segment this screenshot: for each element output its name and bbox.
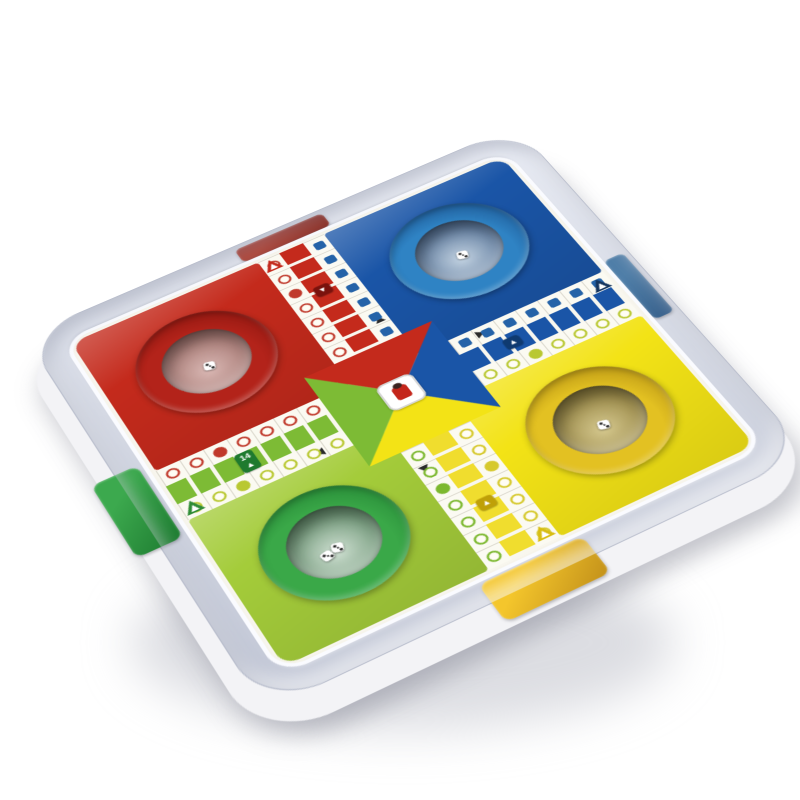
track-space: [297, 301, 315, 314]
die-pip: [458, 253, 461, 255]
badge-arrow: ▲: [244, 460, 257, 470]
track-space: [481, 459, 501, 474]
track-space: [275, 273, 293, 286]
track-space: [457, 337, 473, 348]
track-space: [546, 297, 562, 308]
warning-triangle-icon: [180, 497, 205, 516]
track-lane-bottom: ▲: [401, 421, 561, 570]
popper-ring-yellow: [499, 346, 704, 496]
track-space: [308, 316, 326, 329]
die: [456, 250, 469, 260]
badge-label: ▼: [317, 285, 329, 294]
track-space: [548, 337, 567, 351]
track-space: [533, 525, 553, 540]
popper-ring-green: [233, 464, 437, 623]
track-space: [523, 307, 539, 318]
die-pip: [333, 545, 336, 548]
track-space: [592, 317, 611, 330]
track-space: [526, 347, 545, 361]
badge-label: ▲: [507, 337, 520, 346]
track-space: [520, 508, 540, 523]
dice-popper-red: [113, 292, 302, 434]
track-spaces-green-side: [402, 443, 510, 569]
track-space: [480, 367, 499, 381]
track-space: [280, 457, 299, 471]
brand-mascot-mark: [390, 383, 413, 401]
die: [319, 549, 336, 562]
home-ladder-green: [166, 413, 343, 504]
track-space: [319, 331, 337, 344]
badge-label: 14: [238, 452, 252, 462]
track-space: [280, 414, 299, 428]
track-space: [185, 500, 204, 515]
track-space: [257, 468, 276, 483]
track-space: [458, 514, 478, 529]
track-space: [469, 443, 488, 458]
track-space: [333, 268, 348, 279]
dice-popper-yellow: [499, 346, 704, 496]
track-space: [456, 427, 475, 441]
track-space: [568, 287, 584, 298]
track-space: [615, 307, 634, 320]
dice-popper-blue: [365, 185, 554, 318]
warning-triangle-inner: [188, 503, 200, 512]
warning-triangle-inner: [537, 529, 550, 539]
track-space: [344, 282, 359, 293]
track-spaces-yellow-side: [450, 421, 560, 546]
die: [203, 361, 216, 371]
track-space: [445, 498, 465, 513]
die: [596, 419, 611, 430]
track-space: [312, 240, 327, 251]
track-space: [210, 445, 229, 459]
popper-dome-green: [270, 492, 399, 593]
track-space: [304, 447, 323, 461]
die-pip: [322, 555, 326, 558]
track-space: [303, 403, 322, 417]
warning-triangle-icon: [529, 522, 556, 542]
track-space: [420, 465, 439, 480]
lane-badge-14: 14 ▲: [233, 449, 263, 474]
track-spaces-green-side: [178, 431, 353, 519]
track-space: [378, 326, 394, 337]
track-space: [322, 254, 337, 265]
die-pip: [330, 554, 334, 557]
die-pip: [606, 425, 609, 428]
track-space: [494, 475, 514, 490]
track-space: [570, 327, 589, 341]
die-pip: [205, 363, 208, 365]
track-space: [408, 449, 427, 464]
track-space: [286, 287, 304, 300]
dice-popper-green: [233, 464, 437, 623]
track-space: [501, 317, 517, 328]
track-space: [483, 548, 503, 563]
lane-badge: ▲: [474, 494, 499, 512]
track-space: [233, 478, 252, 493]
track-space: [257, 424, 276, 438]
track-space: [209, 489, 228, 504]
track-space: [367, 311, 382, 322]
track-space: [503, 357, 522, 371]
die-pip: [211, 366, 214, 368]
badge-label: ▲: [480, 498, 494, 508]
track-space: [187, 455, 206, 469]
track-space: [327, 436, 346, 450]
die-pip: [339, 548, 342, 551]
warning-triangle: [529, 522, 556, 542]
die-pip: [326, 555, 330, 558]
home-ladder-yellow: [423, 431, 538, 559]
popper-dome-yellow: [536, 373, 665, 468]
track-space: [356, 296, 371, 307]
product-photo: ▼ ▲ ▲: [0, 0, 800, 800]
warning-triangle: [180, 497, 205, 516]
track-space: [432, 481, 452, 496]
track-space: [330, 345, 348, 359]
die-pip: [336, 546, 339, 549]
die-pip: [599, 422, 602, 424]
track-space: [234, 434, 253, 448]
track-space: [507, 492, 527, 507]
die-pip: [464, 255, 467, 257]
track-space: [479, 327, 495, 338]
track-space: [470, 531, 490, 546]
track-space: [163, 466, 182, 480]
die: [330, 542, 344, 554]
die-pip: [602, 423, 605, 426]
